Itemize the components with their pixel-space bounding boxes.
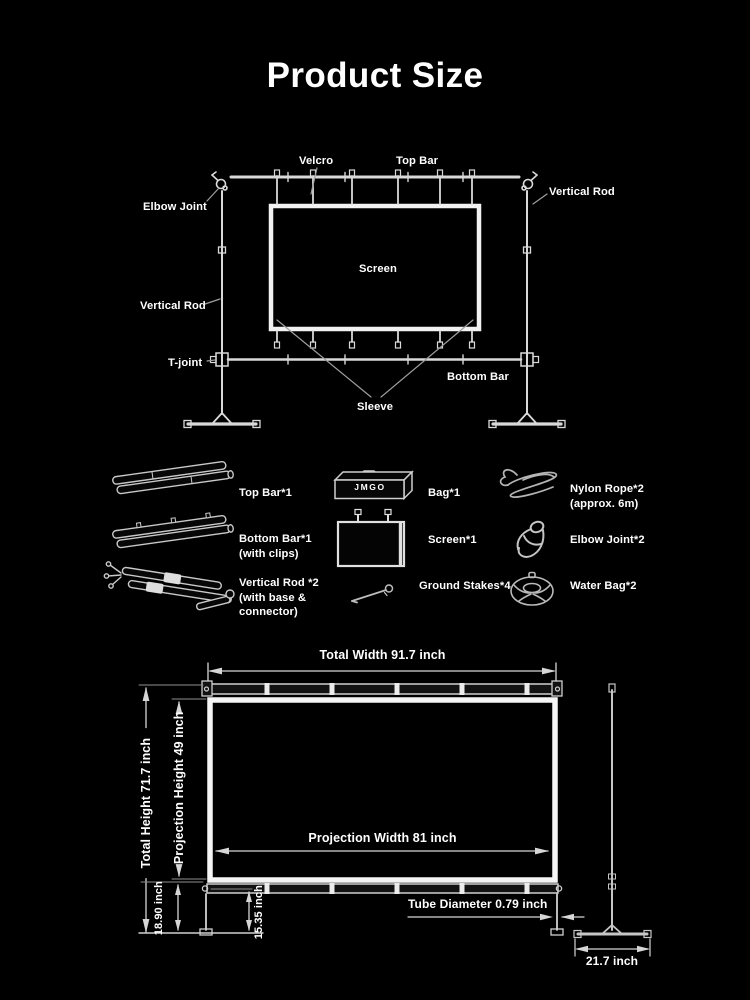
vertical-rod-icon xyxy=(104,562,234,611)
product-size-infographic: Product Size Velcro Top Bar Vertical Rod… xyxy=(0,0,750,1000)
dim-base-width: 21.7 inch xyxy=(577,954,647,970)
label-velcro: Velcro xyxy=(299,154,333,169)
label-elbow-joint: Elbow Joint xyxy=(143,200,207,215)
velcro-clips-bottom xyxy=(275,331,475,348)
top-bar-icon xyxy=(112,460,233,494)
velcro-clips-top xyxy=(275,170,475,204)
bar-to-ground-dimension xyxy=(211,889,252,931)
dim-bar-to-ground: 15.35 inch xyxy=(252,877,266,947)
part-label-screen: Screen*1 xyxy=(428,533,477,548)
label-vertical-rod-left: Vertical Rod xyxy=(140,299,206,314)
bottom-bar-icon xyxy=(112,510,234,549)
elbow-joint-left-icon xyxy=(212,172,227,190)
assembly-feet xyxy=(184,413,565,428)
elbow-joint-icon xyxy=(518,520,545,557)
part-label-ground-stakes: Ground Stakes*4 xyxy=(419,579,511,594)
label-bottom-bar: Bottom Bar xyxy=(447,370,509,385)
total-width-dimension xyxy=(208,663,556,681)
dim-total-height: Total Height 71.7 inch xyxy=(138,728,154,878)
page-title: Product Size xyxy=(0,56,750,96)
label-sleeve: Sleeve xyxy=(357,400,393,415)
dim-projection-height: Projection Height 49 inch xyxy=(171,714,187,864)
dim-screen-frame xyxy=(210,700,555,880)
part-label-top-bar: Top Bar*1 xyxy=(239,486,292,501)
dim-tube-diameter: Tube Diameter 0.79 inch xyxy=(408,897,547,913)
label-top-bar: Top Bar xyxy=(396,154,438,169)
dim-projection-width: Projection Width 81 inch xyxy=(295,830,470,846)
label-vertical-rod-right: Vertical Rod xyxy=(549,185,615,200)
elbow-joint-right-icon xyxy=(522,172,537,190)
dimension-diagram xyxy=(139,663,651,956)
water-bag-icon xyxy=(511,573,553,606)
screen-to-ground-dimension xyxy=(141,882,203,931)
dim-total-width: Total Width 91.7 inch xyxy=(290,647,475,663)
label-screen: Screen xyxy=(359,262,397,277)
ground-stakes-icon xyxy=(352,585,393,603)
nylon-rope-icon xyxy=(501,470,557,497)
screen-icon xyxy=(338,510,404,567)
part-label-elbow-joint: Elbow Joint*2 xyxy=(570,533,645,548)
dim-screen-to-ground: 18.90 inch xyxy=(152,873,166,943)
part-label-nylon-rope: Nylon Rope*2 (approx. 6m) xyxy=(570,482,644,511)
part-label-vertical-rod: Vertical Rod *2 (with base & connector) xyxy=(239,576,319,620)
part-label-bottom-bar: Bottom Bar*1 (with clips) xyxy=(239,532,312,561)
assembly-bottom-bar xyxy=(211,353,539,366)
bag-logo: JMGO xyxy=(335,482,405,492)
dim-top-bar xyxy=(202,681,562,696)
label-t-joint: T-joint xyxy=(168,356,202,371)
side-pole xyxy=(574,684,651,938)
assembly-diagram xyxy=(184,168,565,428)
part-label-water-bag: Water Bag*2 xyxy=(570,579,637,594)
part-label-bag: Bag*1 xyxy=(428,486,460,501)
